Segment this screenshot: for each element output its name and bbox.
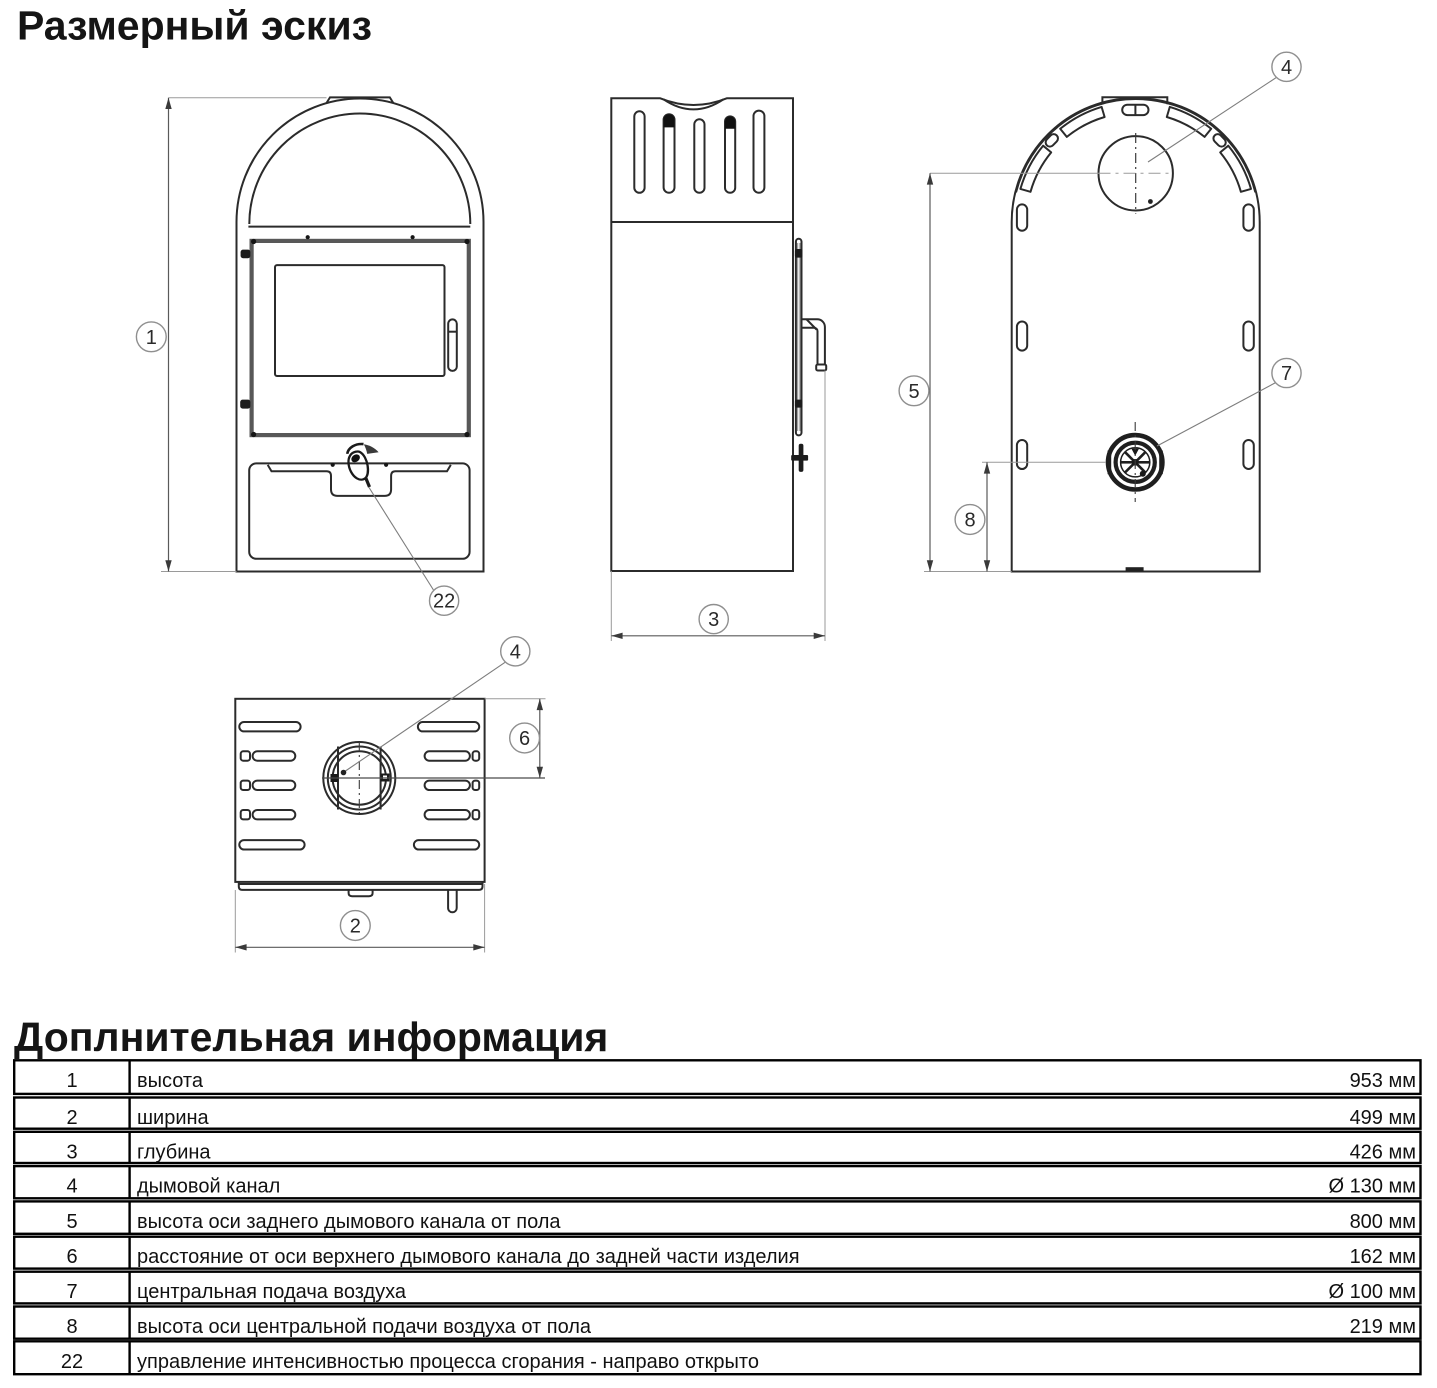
- svg-text:Ø 130 мм: Ø 130 мм: [1328, 1176, 1416, 1198]
- svg-text:Ø 100 мм: Ø 100 мм: [1328, 1281, 1416, 1303]
- svg-text:1: 1: [146, 327, 157, 349]
- svg-text:5: 5: [66, 1211, 77, 1233]
- svg-text:8: 8: [964, 510, 975, 532]
- svg-text:высота оси центральной подачи: высота оси центральной подачи воздуха от…: [137, 1316, 592, 1338]
- svg-text:3: 3: [66, 1141, 77, 1163]
- svg-text:22: 22: [433, 591, 455, 613]
- svg-text:высота: высота: [137, 1070, 204, 1092]
- svg-text:7: 7: [1281, 363, 1292, 385]
- svg-text:3: 3: [708, 609, 719, 631]
- svg-text:6: 6: [519, 728, 530, 750]
- svg-text:426 мм: 426 мм: [1350, 1141, 1416, 1163]
- svg-text:расстояние от оси верхнего дым: расстояние от оси верхнего дымового кана…: [137, 1246, 800, 1268]
- svg-text:глубина: глубина: [137, 1141, 211, 1163]
- svg-text:162 мм: 162 мм: [1350, 1246, 1416, 1268]
- svg-text:Размерный эскиз: Размерный эскиз: [17, 3, 372, 49]
- svg-text:4: 4: [66, 1176, 77, 1198]
- svg-text:8: 8: [66, 1316, 77, 1338]
- svg-text:22: 22: [61, 1351, 83, 1373]
- svg-text:6: 6: [66, 1246, 77, 1268]
- svg-text:800 мм: 800 мм: [1350, 1211, 1416, 1233]
- svg-text:2: 2: [66, 1107, 77, 1129]
- svg-text:499 мм: 499 мм: [1350, 1107, 1416, 1129]
- svg-text:219 мм: 219 мм: [1350, 1316, 1416, 1338]
- svg-text:1: 1: [66, 1070, 77, 1092]
- svg-text:управление интенсивностью проц: управление интенсивностью процесса сгора…: [137, 1351, 759, 1373]
- svg-text:дымовой канал: дымовой канал: [137, 1176, 280, 1198]
- svg-text:ширина: ширина: [137, 1107, 210, 1129]
- svg-text:высота оси заднего дымового ка: высота оси заднего дымового канала от по…: [137, 1211, 561, 1233]
- svg-text:4: 4: [510, 641, 521, 663]
- svg-text:центральная подача воздуха: центральная подача воздуха: [137, 1281, 407, 1303]
- svg-text:4: 4: [1281, 57, 1292, 79]
- svg-text:953 мм: 953 мм: [1350, 1070, 1416, 1092]
- svg-text:2: 2: [350, 916, 361, 938]
- svg-text:5: 5: [908, 381, 919, 403]
- svg-text:Доплнительная информация: Доплнительная информация: [14, 1014, 608, 1060]
- svg-text:7: 7: [66, 1281, 77, 1303]
